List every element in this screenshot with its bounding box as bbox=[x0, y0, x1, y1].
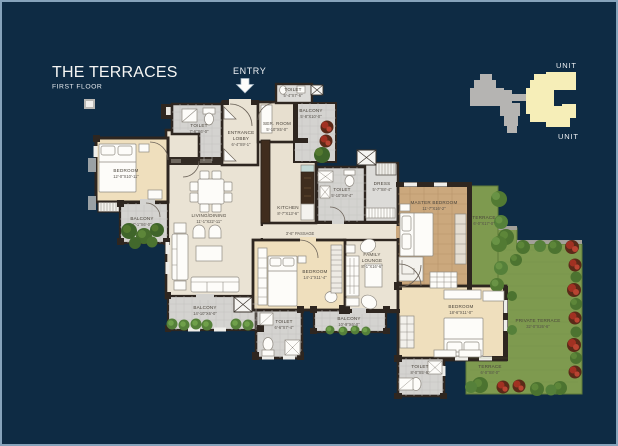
svg-text:6'-4"X9'-1": 6'-4"X9'-1" bbox=[231, 142, 251, 147]
svg-text:14'-10"X6'-0": 14'-10"X6'-0" bbox=[193, 311, 217, 316]
svg-text:6'-0"X17'-0": 6'-0"X17'-0" bbox=[473, 221, 495, 226]
svg-text:5'-10"X5'-0": 5'-10"X5'-0" bbox=[266, 127, 288, 132]
svg-text:10'-9"X6'-0": 10'-9"X6'-0" bbox=[338, 322, 360, 327]
svg-text:LOBBY: LOBBY bbox=[233, 136, 249, 141]
svg-text:FIRST FLOOR: FIRST FLOOR bbox=[52, 84, 102, 91]
svg-text:TERRACE: TERRACE bbox=[478, 364, 501, 369]
svg-text:7'-1"X6'-0": 7'-1"X6'-0" bbox=[132, 222, 152, 227]
svg-text:BEDROOM: BEDROOM bbox=[113, 168, 138, 173]
svg-text:6'-0"X8'-0": 6'-0"X8'-0" bbox=[480, 370, 500, 375]
svg-text:THE TERRACES: THE TERRACES bbox=[52, 64, 178, 81]
svg-text:3'-6" PASSAGE: 3'-6" PASSAGE bbox=[286, 231, 315, 236]
svg-text:BALCONY: BALCONY bbox=[130, 216, 153, 221]
svg-text:BALCONY: BALCONY bbox=[299, 108, 322, 113]
svg-text:5'-7"X8'-4": 5'-7"X8'-4" bbox=[372, 187, 392, 192]
svg-text:TOILET: TOILET bbox=[411, 364, 428, 369]
svg-text:8'-0"X5'-6": 8'-0"X5'-6" bbox=[410, 370, 430, 375]
svg-text:5'-8"X10'-0": 5'-8"X10'-0" bbox=[300, 114, 322, 119]
svg-text:MASTER BEDROOM: MASTER BEDROOM bbox=[411, 200, 458, 205]
svg-text:18'-6"X11'-0": 18'-6"X11'-0" bbox=[449, 310, 473, 315]
svg-text:SER. ROOM: SER. ROOM bbox=[263, 121, 291, 126]
svg-text:8'-1"X16'-6": 8'-1"X16'-6" bbox=[361, 264, 383, 269]
svg-text:TOILET: TOILET bbox=[333, 187, 350, 192]
svg-text:BALCONY: BALCONY bbox=[337, 316, 360, 321]
svg-text:LOUNGE: LOUNGE bbox=[362, 258, 383, 263]
svg-text:ENTRANCE: ENTRANCE bbox=[228, 130, 255, 135]
svg-text:TOILET: TOILET bbox=[275, 319, 292, 324]
svg-text:FAMILY: FAMILY bbox=[363, 252, 380, 257]
svg-text:LIVING/DINING: LIVING/DINING bbox=[191, 213, 226, 218]
svg-text:TOILET: TOILET bbox=[190, 123, 207, 128]
svg-text:8'-7"X13'-6": 8'-7"X13'-6" bbox=[277, 211, 299, 216]
svg-text:DRESS: DRESS bbox=[374, 181, 391, 186]
svg-text:TOILET: TOILET bbox=[284, 87, 301, 92]
svg-text:BEDROOM: BEDROOM bbox=[448, 304, 473, 309]
svg-text:KITCHEN: KITCHEN bbox=[277, 205, 299, 210]
svg-text:11'-1"X22'-11": 11'-1"X22'-11" bbox=[196, 219, 222, 224]
svg-text:11'-7"X16'-2": 11'-7"X16'-2" bbox=[422, 206, 446, 211]
svg-text:TERRACE: TERRACE bbox=[472, 215, 495, 220]
svg-text:5'-4"X7'-6": 5'-4"X7'-6" bbox=[283, 93, 303, 98]
svg-text:12'-0"X10'-11": 12'-0"X10'-11" bbox=[113, 174, 139, 179]
svg-text:6'-6"X7'-4": 6'-6"X7'-4" bbox=[274, 325, 294, 330]
svg-text:ENTRY: ENTRY bbox=[233, 66, 266, 76]
svg-text:7'-6"X6'-0": 7'-6"X6'-0" bbox=[189, 129, 209, 134]
svg-text:5'-10"X8'-4": 5'-10"X8'-4" bbox=[331, 193, 353, 198]
svg-text:32'-0"X26'-6": 32'-0"X26'-6" bbox=[526, 324, 550, 329]
svg-text:14'-1"X11'-4": 14'-1"X11'-4" bbox=[303, 275, 327, 280]
svg-text:UNIT: UNIT bbox=[558, 132, 579, 141]
svg-text:UNIT: UNIT bbox=[556, 61, 577, 70]
svg-text:PRIVATE TERRACE: PRIVATE TERRACE bbox=[515, 318, 560, 323]
svg-text:BEDROOM: BEDROOM bbox=[302, 269, 327, 274]
svg-text:BALCONY: BALCONY bbox=[193, 305, 216, 310]
